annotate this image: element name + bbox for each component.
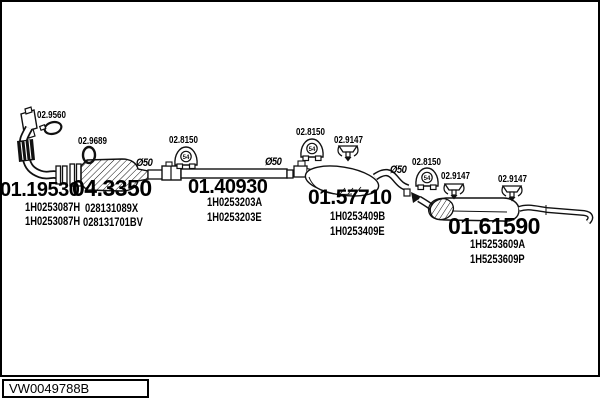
oem-number: 1H5253609A — [470, 238, 525, 250]
fitting-number-mount-2: 02.9147 — [441, 172, 470, 182]
oem-number: 028131701BV — [83, 216, 143, 228]
oem-number: 1H5253609P — [470, 253, 525, 265]
fitting-number-mount-3: 02.9147 — [498, 175, 527, 185]
part-number-front-pipe: 01.19530 — [0, 180, 79, 200]
oem-number: 1H0253409E — [330, 225, 385, 237]
fitting-number-mount-1: 02.9147 — [334, 136, 363, 146]
oem-number: 1H0253203A — [207, 196, 262, 208]
oem-number: 1H0253409B — [330, 210, 385, 222]
drawing-number: VW0049788B — [9, 381, 89, 396]
part-number-centre-pipe: 01.40930 — [188, 177, 267, 197]
fitting-number-hanger-2: 02.8150 — [296, 128, 325, 138]
oem-number: 1H0253203E — [207, 211, 262, 223]
fitting-number-hanger-1: 02.8150 — [169, 136, 198, 146]
clamp-icon — [40, 120, 63, 136]
fitting-number-clamp: 02.9560 — [37, 111, 66, 121]
part-number-centre-muffler: 01.57710 — [308, 187, 392, 208]
part-number-rear-muffler: 01.61590 — [448, 215, 540, 238]
oem-number: 1H0253087H — [25, 201, 80, 213]
drawing-number-box: VW0049788B — [2, 379, 149, 398]
exhaust-parts-diagram: 54 — [0, 0, 600, 400]
part-number-catalyst: 04.3350 — [72, 177, 152, 200]
diameter-marker: Ø50 — [390, 165, 406, 176]
diameter-marker: Ø50 — [265, 157, 281, 168]
diameter-marker: Ø50 — [136, 158, 152, 169]
fitting-number-gasket: 02.9689 — [78, 137, 107, 147]
fitting-number-hanger-3: 02.8150 — [412, 158, 441, 168]
oem-number: 1H0253087H — [25, 215, 80, 227]
oem-number: 028131089X — [85, 202, 138, 214]
